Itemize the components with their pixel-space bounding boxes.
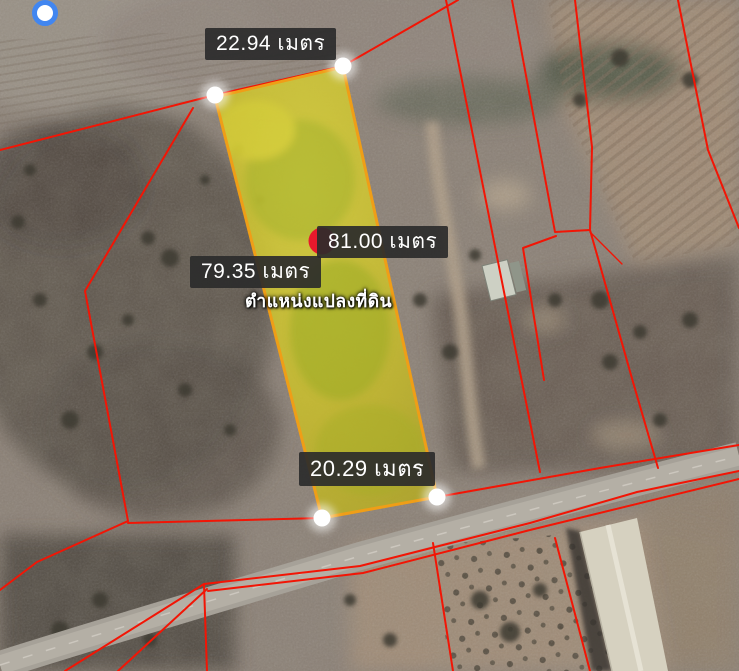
vertex-marker-icon[interactable] — [423, 483, 451, 511]
measurement-label-bottom: 20.29 เมตร — [299, 452, 435, 486]
map-overlay-graphics — [0, 0, 739, 671]
parcel-location-caption: ตำแหน่งแปลงที่ดิน — [245, 287, 392, 315]
my-location-icon[interactable] — [35, 3, 56, 24]
vertex-marker-icon[interactable] — [308, 504, 336, 532]
measurement-label-right: 81.00 เมตร — [317, 226, 448, 258]
satellite-map-canvas[interactable]: 22.94 เมตร 81.00 เมตร 79.35 เมตร 20.29 เ… — [0, 0, 739, 671]
measurement-label-left: 79.35 เมตร — [190, 256, 321, 288]
measurement-label-top: 22.94 เมตร — [205, 28, 336, 60]
vertex-marker-icon[interactable] — [201, 81, 229, 109]
